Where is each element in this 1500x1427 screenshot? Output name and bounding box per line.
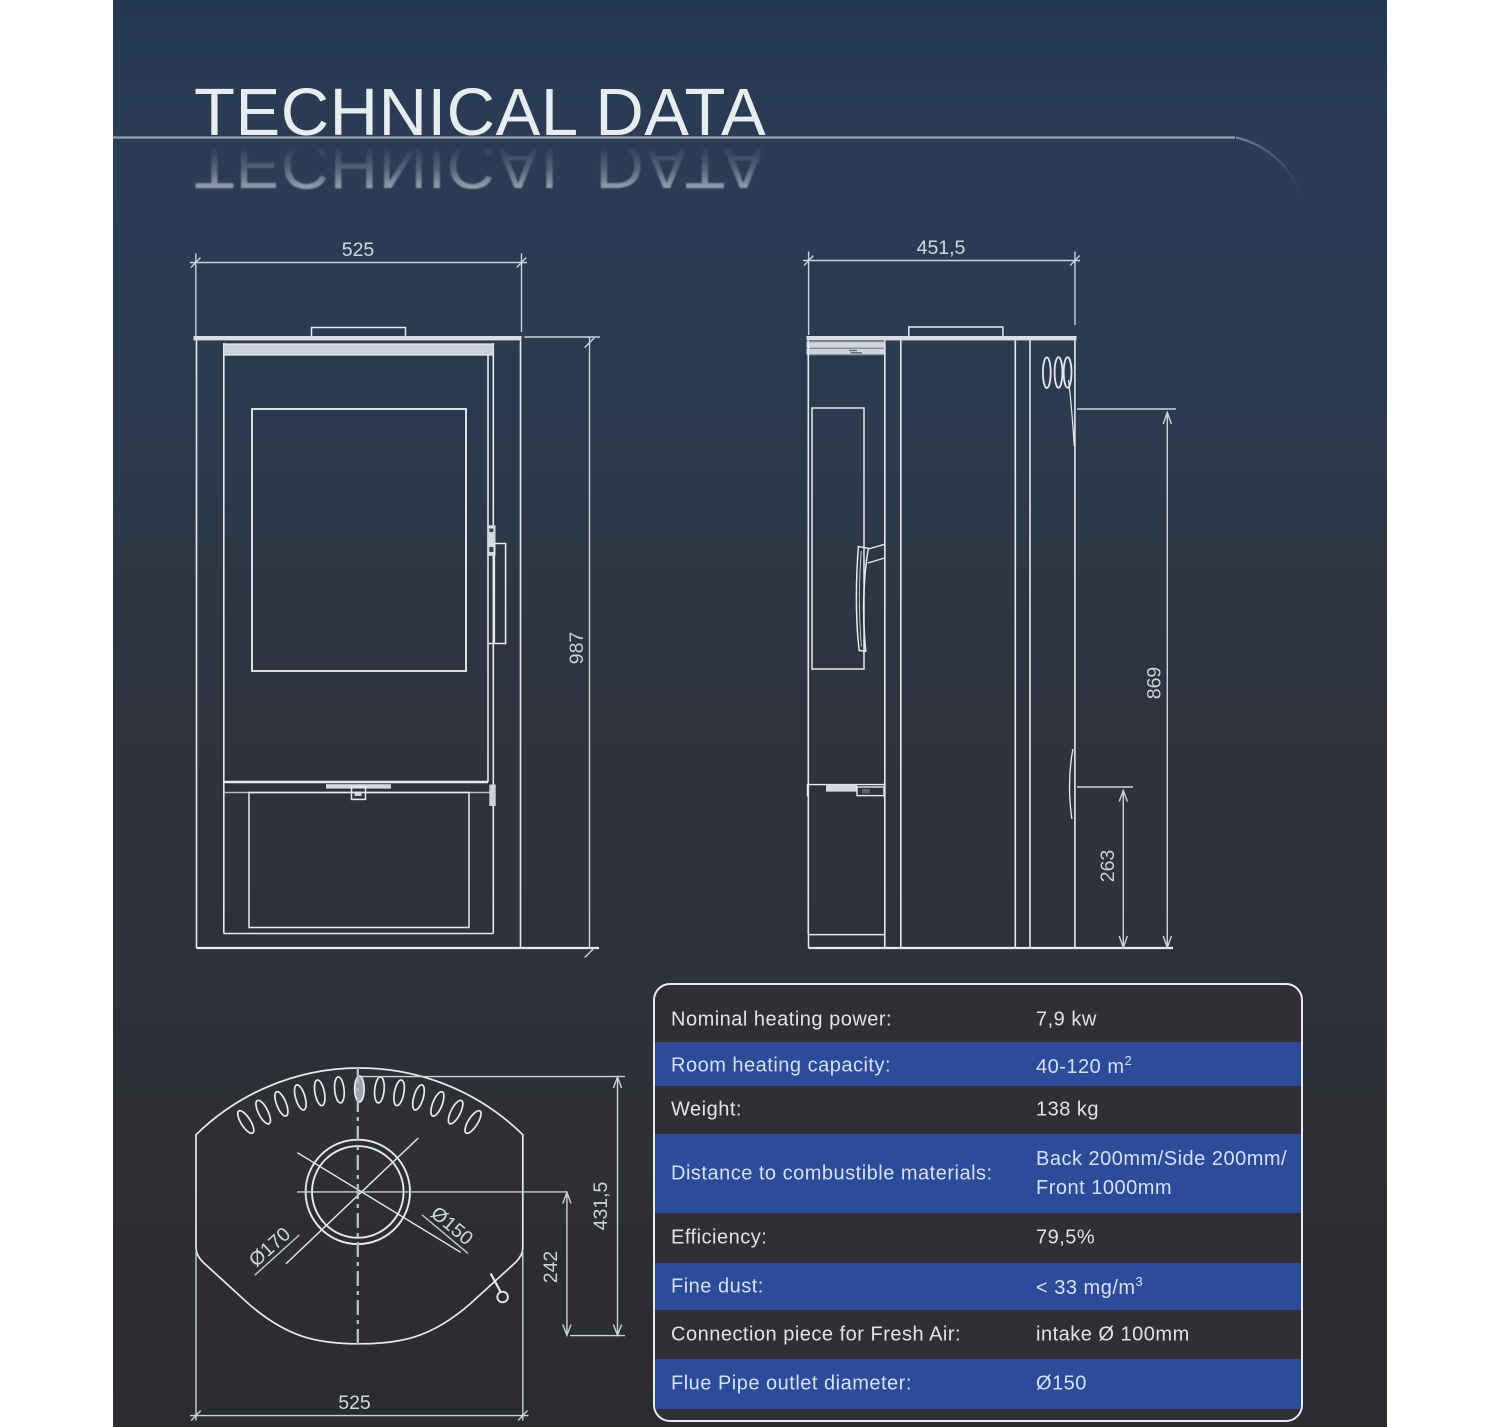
svg-text:869: 869	[1144, 667, 1166, 700]
svg-text:263: 263	[1097, 850, 1119, 883]
svg-text:987: 987	[566, 632, 588, 665]
svg-text:431,5: 431,5	[590, 1181, 612, 1230]
svg-text:525: 525	[342, 239, 375, 261]
svg-text:451,5: 451,5	[917, 237, 966, 259]
svg-text:525: 525	[338, 1392, 371, 1414]
svg-text:242: 242	[540, 1251, 562, 1284]
svg-text:Ø170: Ø170	[245, 1223, 295, 1271]
svg-text:Ø150: Ø150	[426, 1202, 477, 1250]
